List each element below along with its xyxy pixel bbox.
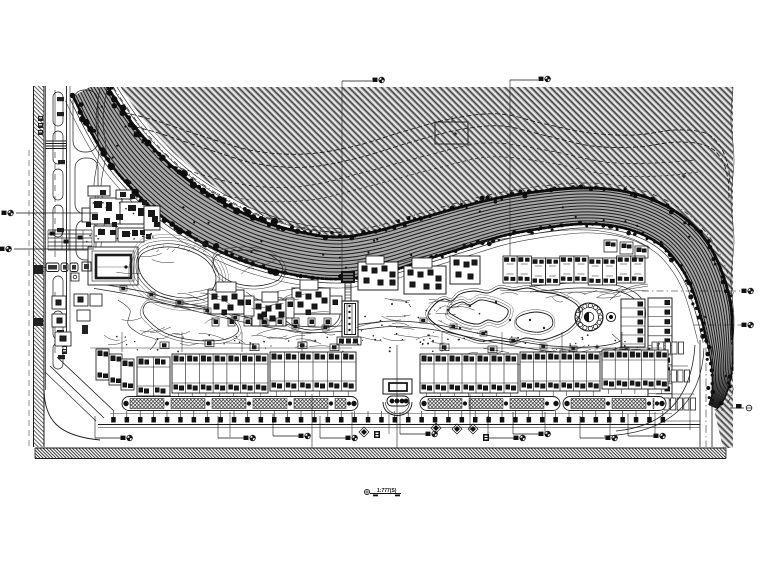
svg-text:1:777(S): 1:777(S) (377, 488, 397, 494)
